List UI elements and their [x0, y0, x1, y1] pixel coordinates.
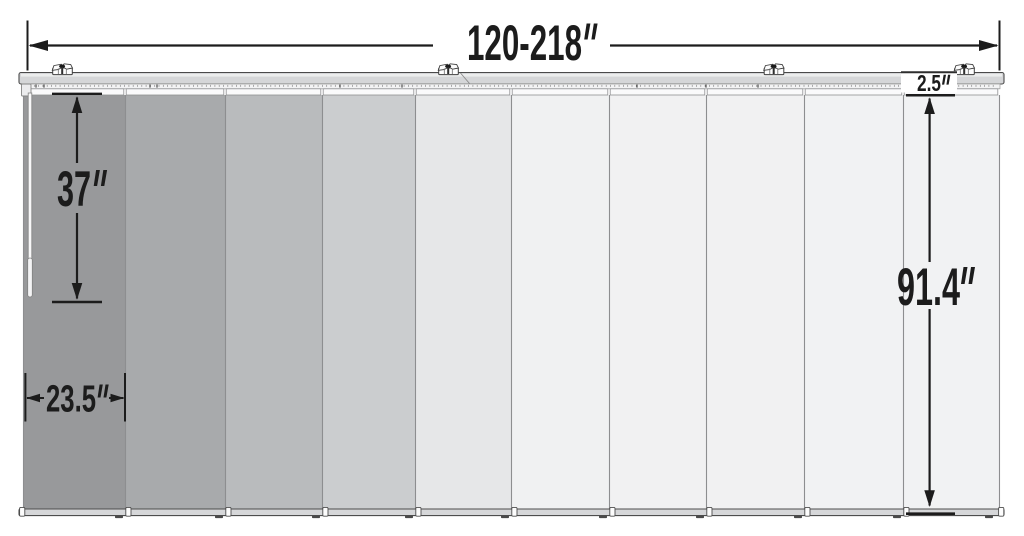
svg-text:2.5: 2.5: [917, 70, 941, 96]
svg-text:23.5: 23.5: [46, 379, 96, 421]
svg-text:120-218: 120-218: [467, 15, 582, 71]
svg-text:91.4: 91.4: [897, 258, 960, 317]
svg-text:37: 37: [57, 161, 91, 217]
